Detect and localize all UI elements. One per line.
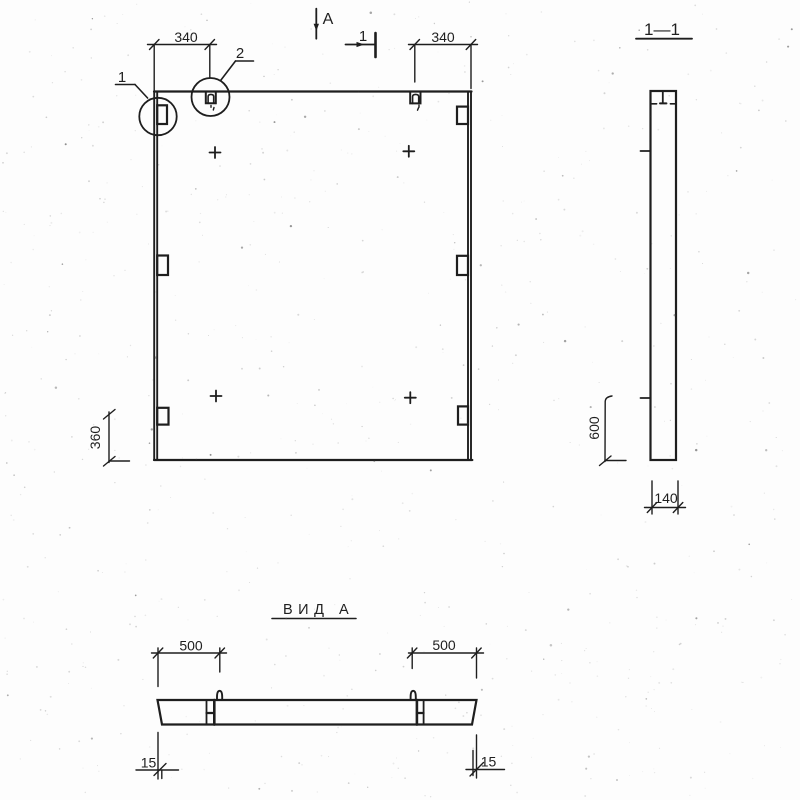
svg-text:1—1: 1—1: [644, 20, 680, 39]
svg-text:140: 140: [654, 490, 678, 506]
svg-text:340: 340: [174, 29, 198, 45]
svg-text:ВИД А: ВИД А: [283, 602, 354, 618]
svg-text:500: 500: [179, 638, 203, 654]
svg-text:360: 360: [87, 426, 103, 450]
svg-text:600: 600: [586, 416, 602, 440]
svg-text:2: 2: [236, 45, 244, 62]
svg-text:500: 500: [432, 637, 456, 653]
svg-text:A: A: [323, 11, 334, 28]
svg-text:340: 340: [431, 29, 455, 45]
svg-text:15: 15: [141, 755, 157, 771]
svg-text:1: 1: [118, 69, 126, 86]
svg-text:15: 15: [481, 754, 497, 770]
svg-text:1: 1: [359, 28, 367, 45]
